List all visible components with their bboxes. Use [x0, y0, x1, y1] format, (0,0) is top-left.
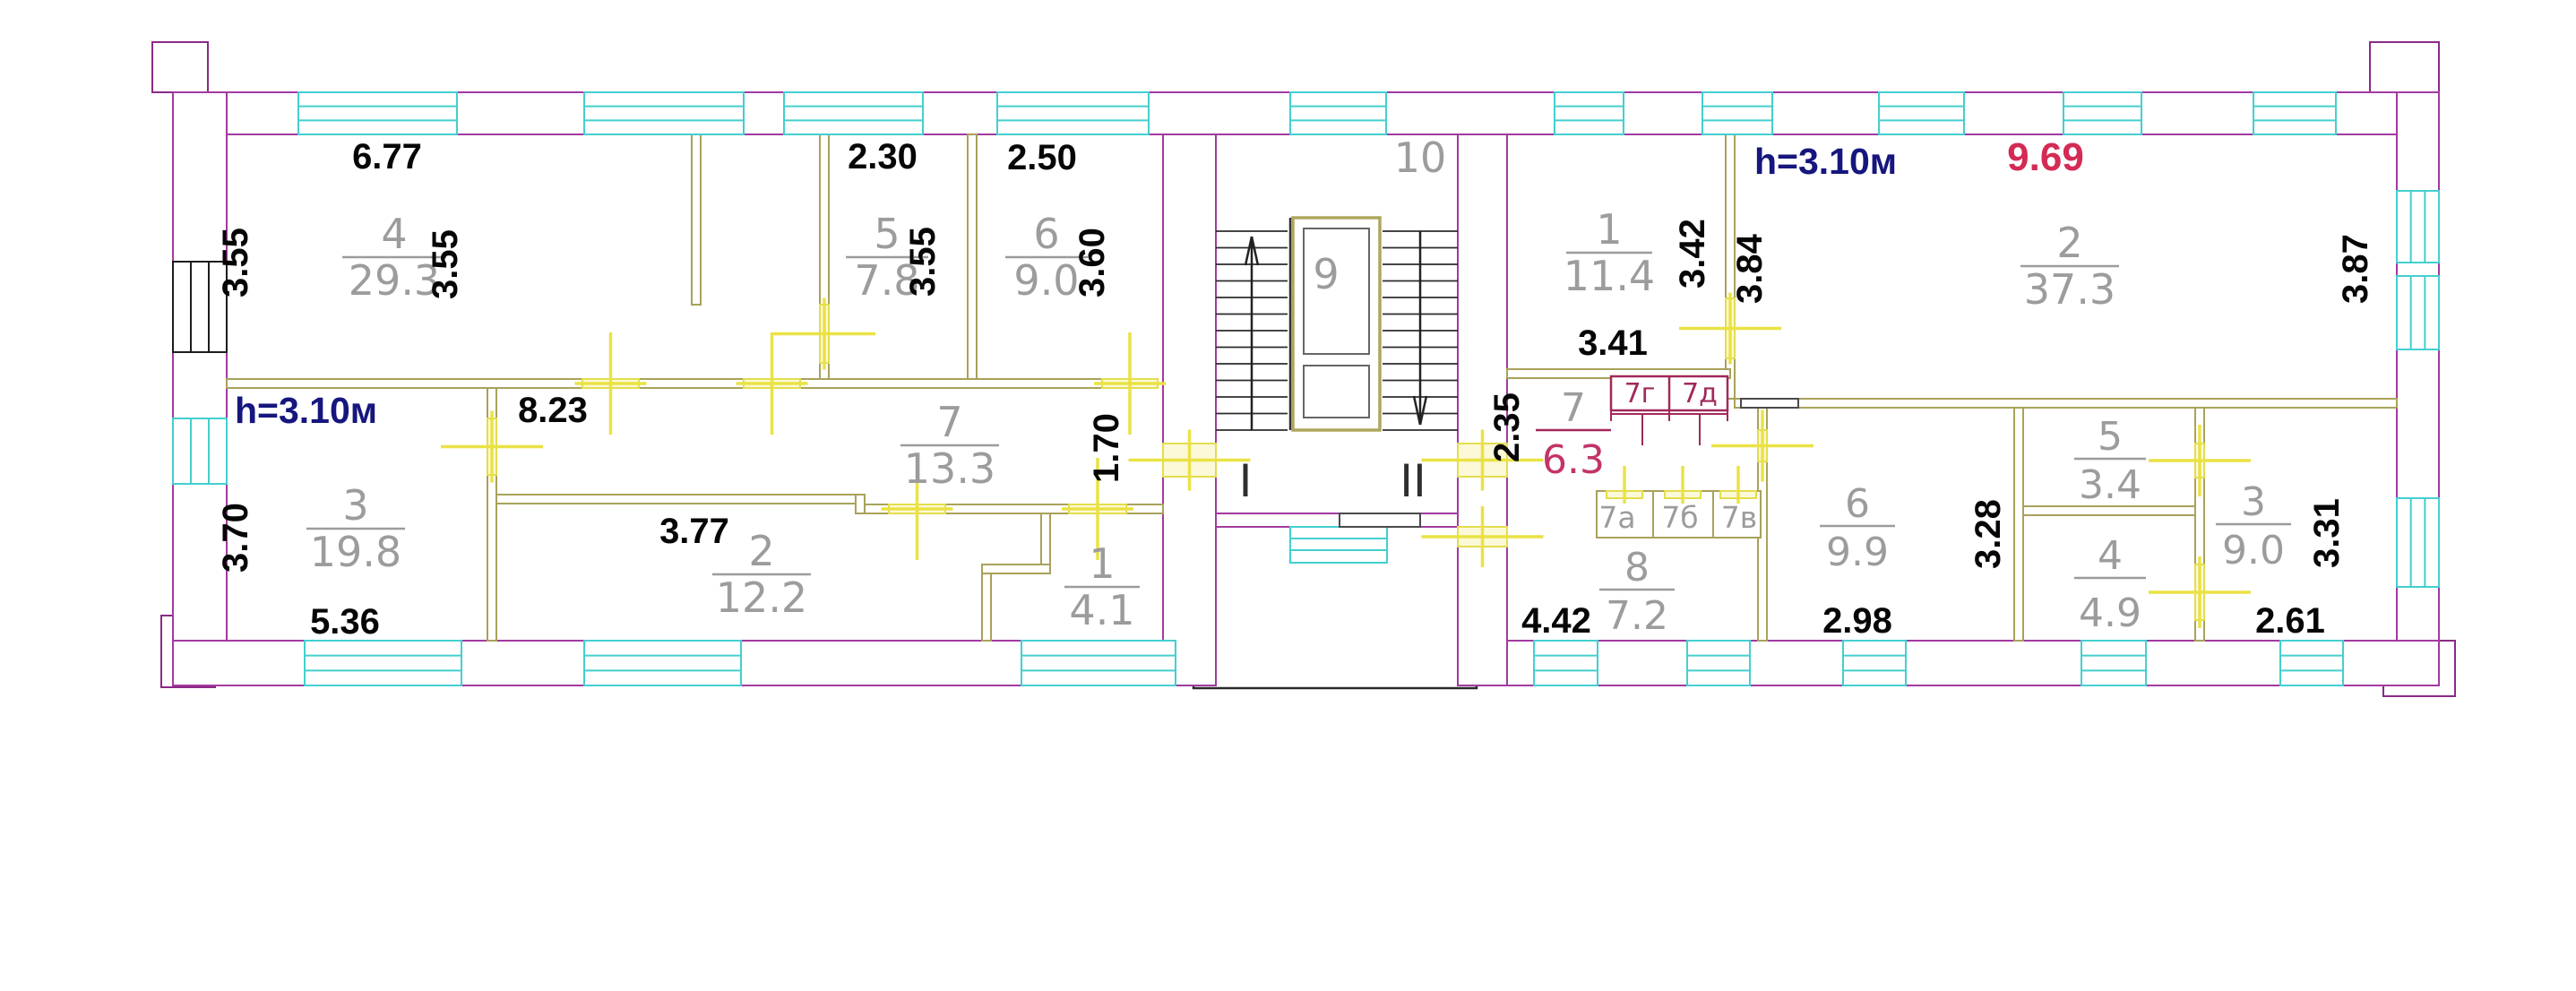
- room-l2-area: 12.2: [716, 573, 807, 622]
- room-l1-number: 1: [1089, 539, 1115, 588]
- room-r6-area: 9.9: [1826, 530, 1889, 575]
- interior-wall: [945, 504, 1069, 513]
- closet-7d: 7д: [1682, 378, 1718, 409]
- room-r6-number: 6: [1845, 481, 1870, 527]
- room-l1-area: 4.1: [1069, 586, 1134, 634]
- room-r1-number: 1: [1596, 205, 1622, 254]
- closet-7b: 7б: [1661, 500, 1698, 535]
- window-symbol: [1534, 641, 1598, 685]
- room-l7-area: 13.3: [904, 444, 995, 493]
- window-symbol: [2397, 276, 2439, 349]
- dim-298: 2.98: [1822, 601, 1892, 641]
- window-symbol: [1021, 641, 1176, 685]
- dim-341: 3.41: [1578, 323, 1648, 363]
- wall-stair-west: [1163, 134, 1216, 685]
- window-symbol: [2397, 191, 2439, 263]
- door-symbol: [1720, 466, 1756, 504]
- dim-342: 3.42: [1673, 219, 1712, 289]
- room-l4-number: 4: [381, 210, 407, 258]
- closet-7g: 7г: [1624, 378, 1656, 409]
- interior-wall: [982, 573, 991, 641]
- window-frame: [1879, 92, 1964, 134]
- stair-flat-10: 10: [1394, 134, 1447, 182]
- window-symbol: [1290, 92, 1386, 134]
- door-symbol: [1607, 466, 1642, 504]
- interior-wall: [639, 379, 744, 388]
- room-r2-number: 2: [2056, 219, 2082, 267]
- interior-wall: [968, 134, 977, 379]
- wall-left: [173, 92, 227, 685]
- dim-387: 3.87: [2336, 234, 2375, 304]
- room-r3-number: 3: [2241, 479, 2266, 525]
- window-symbol: [1843, 641, 1906, 685]
- red-dim-969: 9.69: [2007, 135, 2084, 179]
- window-frame: [2253, 92, 2336, 134]
- room-r1-area: 11.4: [1564, 252, 1655, 300]
- window-frame: [1702, 92, 1772, 134]
- dim-384: 3.84: [1730, 233, 1770, 304]
- dim-370: 3.70: [216, 503, 255, 573]
- interior-wall: [692, 134, 701, 305]
- interior-wall: [800, 379, 1102, 388]
- window-frame: [997, 92, 1149, 134]
- window-symbol: [298, 92, 457, 134]
- window-frame: [1843, 641, 1906, 685]
- dim-328: 3.28: [1969, 499, 2008, 569]
- interior-wall: [2014, 408, 2023, 641]
- window-symbol: [1702, 92, 1772, 134]
- wall-right: [2397, 92, 2439, 685]
- entrance-I: I: [1239, 455, 1253, 507]
- dim-230: 2.30: [848, 137, 918, 177]
- dim-442: 4.42: [1521, 601, 1591, 641]
- interior-wall: [982, 564, 1050, 573]
- window-symbol: [1879, 92, 1964, 134]
- room-l6-number: 6: [1033, 210, 1059, 258]
- window-frame: [584, 92, 744, 134]
- dim-377: 3.77: [659, 512, 729, 551]
- closet-7v: 7в: [1721, 500, 1757, 535]
- left-height-note: h=3.10м: [235, 390, 377, 431]
- window-symbol: [305, 641, 461, 685]
- window-frame: [1687, 641, 1750, 685]
- window-symbol: [173, 418, 227, 484]
- dim-360: 3.60: [1073, 228, 1112, 297]
- window-frame: [173, 418, 227, 484]
- floor-plan: h=3.10м 4 29.3 5 7.8 6 9.0 3 19.8 7 13.3…: [0, 0, 2576, 991]
- room-r4-area: 4.9: [2079, 590, 2141, 636]
- interior-wall: [820, 134, 829, 305]
- wall-opening: [1340, 513, 1420, 527]
- wall-stair-south: [1216, 513, 1458, 527]
- interior-wall: [1041, 513, 1050, 571]
- interior-wall: [227, 379, 582, 388]
- lift-label-9: 9: [1313, 250, 1339, 298]
- porch-window: [1290, 527, 1387, 563]
- dim-677: 6.77: [352, 137, 422, 177]
- window-symbol: [1687, 641, 1750, 685]
- window-frame: [784, 92, 923, 134]
- window-frame: [1534, 641, 1598, 685]
- dim-261: 2.61: [2255, 601, 2325, 641]
- window-symbol: [2081, 641, 2146, 685]
- room-r4-number: 4: [2098, 533, 2123, 579]
- dim-235: 2.35: [1487, 392, 1527, 462]
- window-frame: [2397, 276, 2439, 349]
- window-frame: [1021, 641, 1176, 685]
- door-symbol: [2149, 425, 2251, 496]
- window-symbol: [2397, 498, 2439, 587]
- right-height-note: h=3.10м: [1754, 141, 1897, 182]
- dim-170: 1.70: [1087, 413, 1126, 483]
- door-symbol: [773, 298, 875, 370]
- room-r7-area: 6.3: [1542, 437, 1605, 483]
- door-symbol: [737, 332, 808, 435]
- window-symbol: [1555, 92, 1624, 134]
- room-r5-number: 5: [2098, 414, 2123, 460]
- window-symbol: [784, 92, 923, 134]
- window-symbol: [997, 92, 1149, 134]
- window-frame: [2063, 92, 2141, 134]
- dim-331: 3.31: [2307, 498, 2347, 568]
- interior-wall: [1798, 399, 2397, 408]
- room-l6-area: 9.0: [1013, 256, 1079, 305]
- room-l7-number: 7: [936, 398, 962, 446]
- window-frame: [305, 641, 461, 685]
- window-symbol: [584, 92, 744, 134]
- window-frame: [2081, 641, 2146, 685]
- interior-wall: [487, 475, 496, 641]
- room-l2-number: 2: [748, 527, 774, 575]
- room-r8-number: 8: [1624, 545, 1650, 590]
- window-frame: [2280, 641, 2343, 685]
- window-symbol: [584, 641, 741, 685]
- window-frame: [298, 92, 457, 134]
- window-symbol: [2280, 641, 2343, 685]
- room-r5-area: 3.4: [2079, 462, 2141, 508]
- room-r3-area: 9.0: [2222, 528, 2285, 573]
- dim-250: 2.50: [1007, 138, 1077, 177]
- interior-wall: [1735, 399, 1741, 408]
- dim-823: 8.23: [518, 391, 588, 430]
- room-r2-area: 37.3: [2024, 265, 2115, 314]
- window-frame: [1290, 92, 1386, 134]
- elevator-counterweight: [1304, 366, 1369, 418]
- closet-7a: 7а: [1598, 500, 1635, 535]
- dim-355-mid: 3.55: [426, 229, 465, 299]
- room-l3-number: 3: [342, 481, 368, 530]
- window-frame: [2397, 498, 2439, 587]
- window-frame: [1555, 92, 1624, 134]
- entrance-II: II: [1400, 455, 1426, 507]
- door-symbol: [1665, 466, 1701, 504]
- window-symbol: [2063, 92, 2141, 134]
- dim-536: 5.36: [310, 602, 380, 642]
- room-l5-number: 5: [874, 210, 900, 258]
- dim-355-left: 3.55: [216, 228, 255, 297]
- window-symbol: [2253, 92, 2336, 134]
- window-frame: [584, 641, 741, 685]
- dim-355-room5: 3.55: [903, 227, 943, 297]
- interior-wall: [496, 495, 865, 504]
- interior-wall: [856, 495, 865, 513]
- room-r8-area: 7.2: [1606, 593, 1668, 639]
- window-frame: [2397, 191, 2439, 263]
- closet-dim-ticks: [1611, 408, 1727, 445]
- room-r7-number: 7: [1561, 385, 1586, 431]
- interior-wall: [1758, 461, 1767, 641]
- room-l3-area: 19.8: [310, 528, 401, 576]
- door-symbol: [1129, 430, 1251, 491]
- wall-opening: [1741, 399, 1798, 408]
